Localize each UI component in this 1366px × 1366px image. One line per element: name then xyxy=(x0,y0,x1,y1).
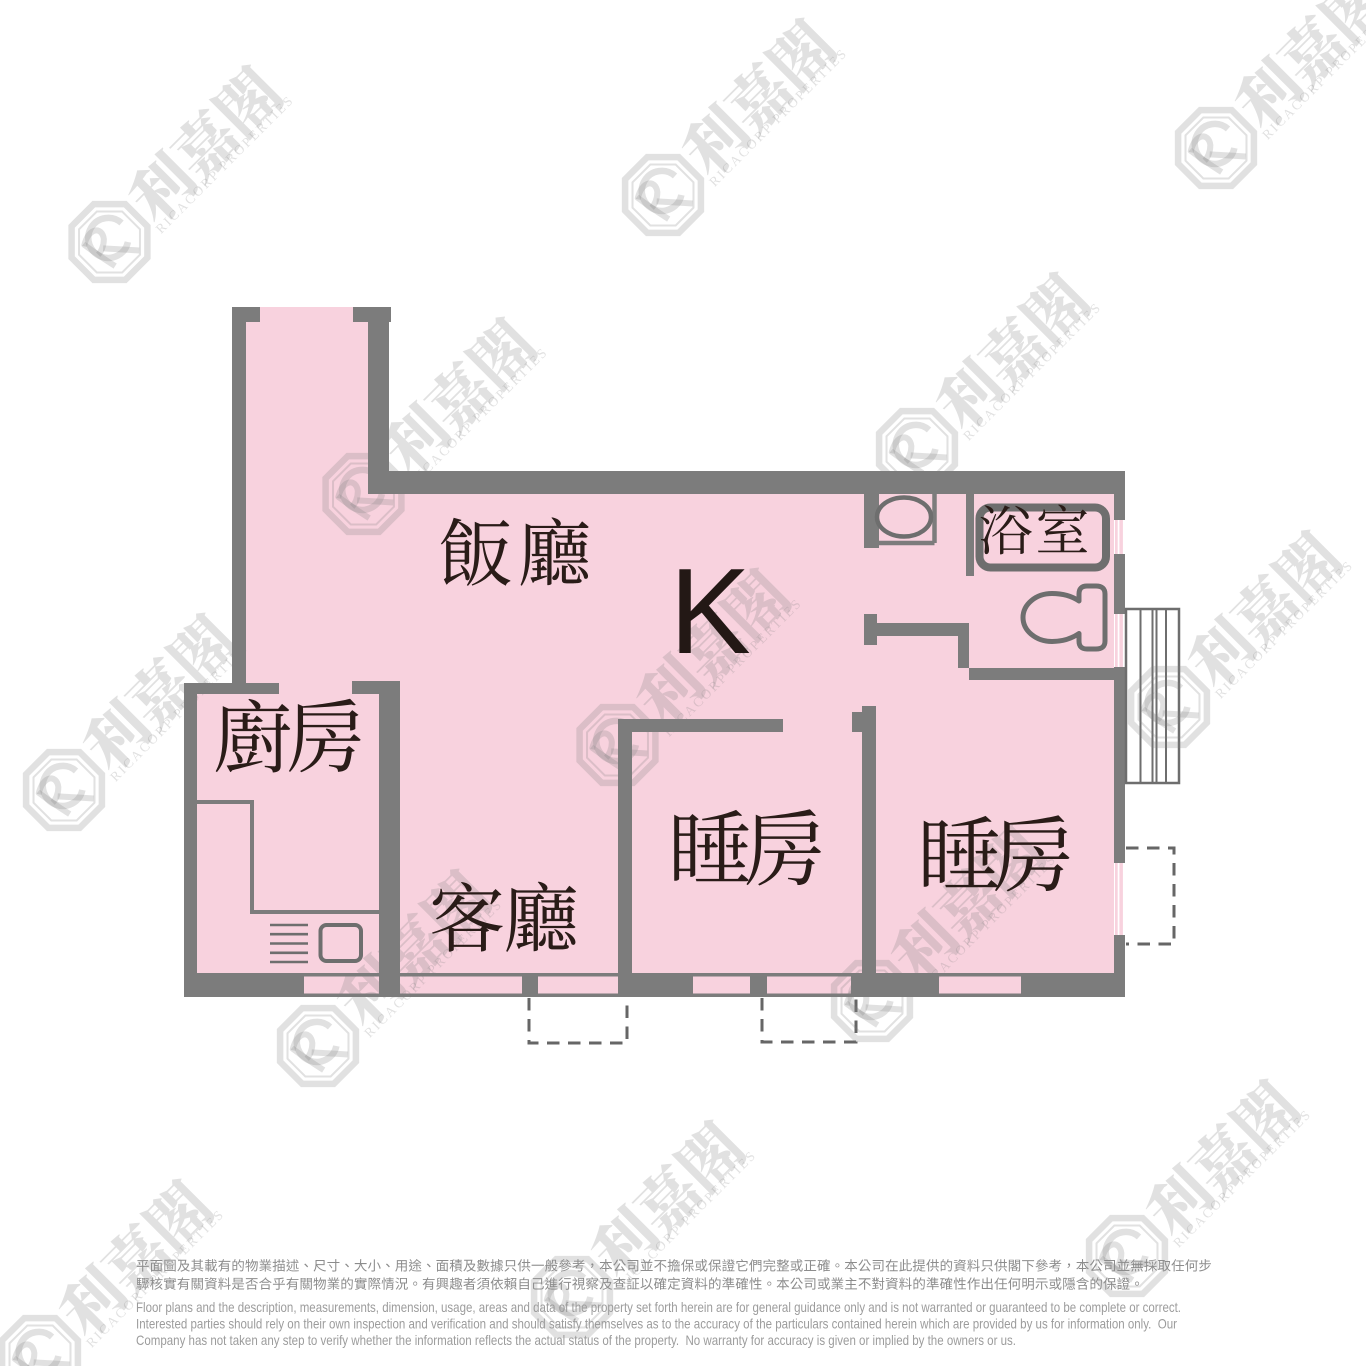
svg-text:K: K xyxy=(669,543,750,679)
svg-text:Interested parties should rely: Interested parties should rely on their … xyxy=(136,1316,1177,1332)
svg-text:Company has not taken any step: Company has not taken any step to verify… xyxy=(136,1332,1016,1348)
svg-text:Floor plans and the descriptio: Floor plans and the description, measure… xyxy=(136,1299,1181,1315)
